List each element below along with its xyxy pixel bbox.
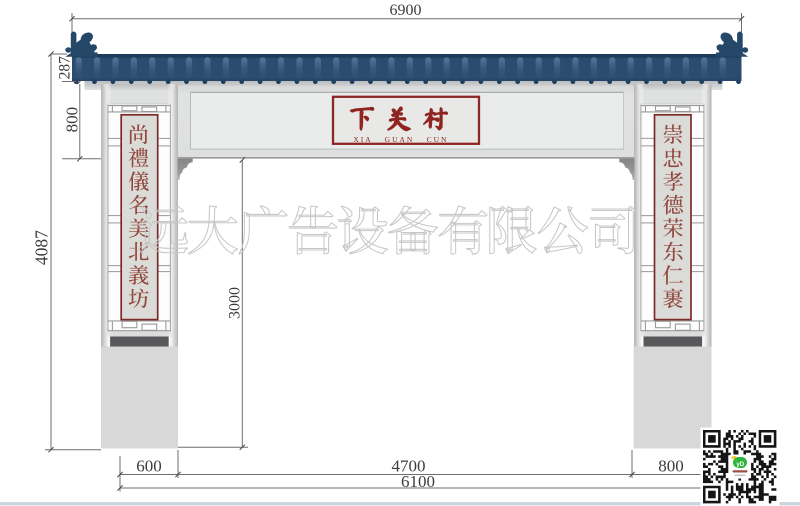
- svg-text:6100: 6100: [401, 472, 435, 491]
- svg-text:XIAGUANCUN: XIAGUANCUN: [353, 135, 448, 144]
- svg-text:3000: 3000: [227, 287, 244, 319]
- svg-text:6900: 6900: [390, 2, 422, 19]
- svg-text:yD: yD: [736, 462, 744, 468]
- svg-text:287: 287: [56, 56, 73, 80]
- svg-text:800: 800: [62, 107, 81, 133]
- svg-text:4087: 4087: [32, 230, 52, 265]
